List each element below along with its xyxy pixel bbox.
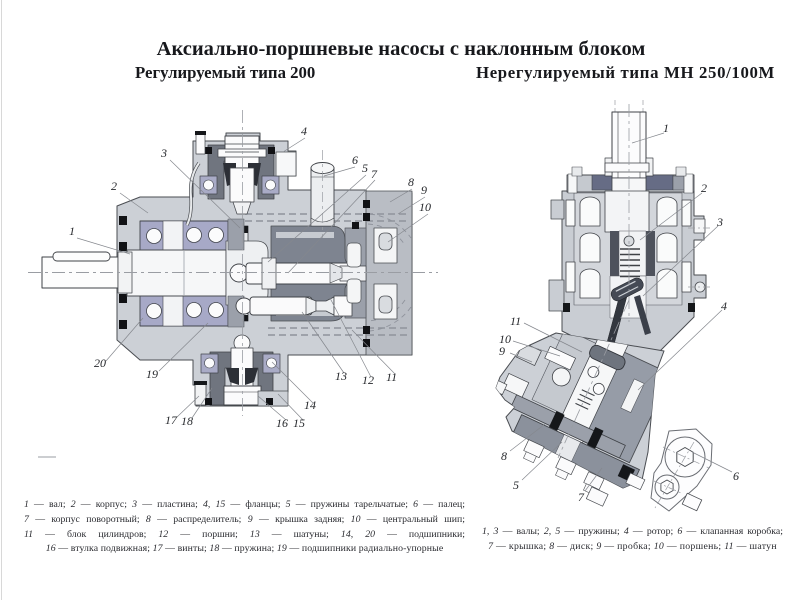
svg-text:4: 4 — [721, 299, 727, 313]
svg-text:7: 7 — [371, 167, 378, 181]
svg-text:5: 5 — [513, 478, 519, 492]
svg-text:15: 15 — [293, 416, 305, 430]
svg-text:6: 6 — [352, 153, 358, 167]
svg-text:20: 20 — [94, 356, 106, 370]
svg-text:7: 7 — [578, 490, 585, 504]
svg-text:1: 1 — [663, 121, 669, 135]
svg-text:6: 6 — [733, 469, 739, 483]
svg-text:3: 3 — [716, 215, 723, 229]
svg-text:9: 9 — [499, 344, 505, 358]
svg-text:2: 2 — [111, 179, 117, 193]
svg-text:11: 11 — [510, 314, 521, 328]
svg-text:5: 5 — [362, 161, 368, 175]
svg-text:10: 10 — [419, 200, 431, 214]
svg-text:16: 16 — [276, 416, 288, 430]
svg-text:13: 13 — [335, 369, 347, 383]
svg-text:9: 9 — [421, 183, 427, 197]
svg-text:12: 12 — [362, 373, 374, 387]
svg-text:1: 1 — [69, 224, 75, 238]
svg-text:18: 18 — [181, 414, 193, 428]
svg-text:4: 4 — [301, 124, 307, 138]
svg-text:14: 14 — [304, 398, 316, 412]
svg-text:2: 2 — [701, 181, 707, 195]
svg-text:3: 3 — [160, 146, 167, 160]
svg-text:19: 19 — [146, 367, 158, 381]
svg-text:17: 17 — [165, 413, 178, 427]
svg-text:11: 11 — [386, 370, 397, 384]
svg-text:8: 8 — [501, 449, 507, 463]
svg-text:8: 8 — [408, 175, 414, 189]
